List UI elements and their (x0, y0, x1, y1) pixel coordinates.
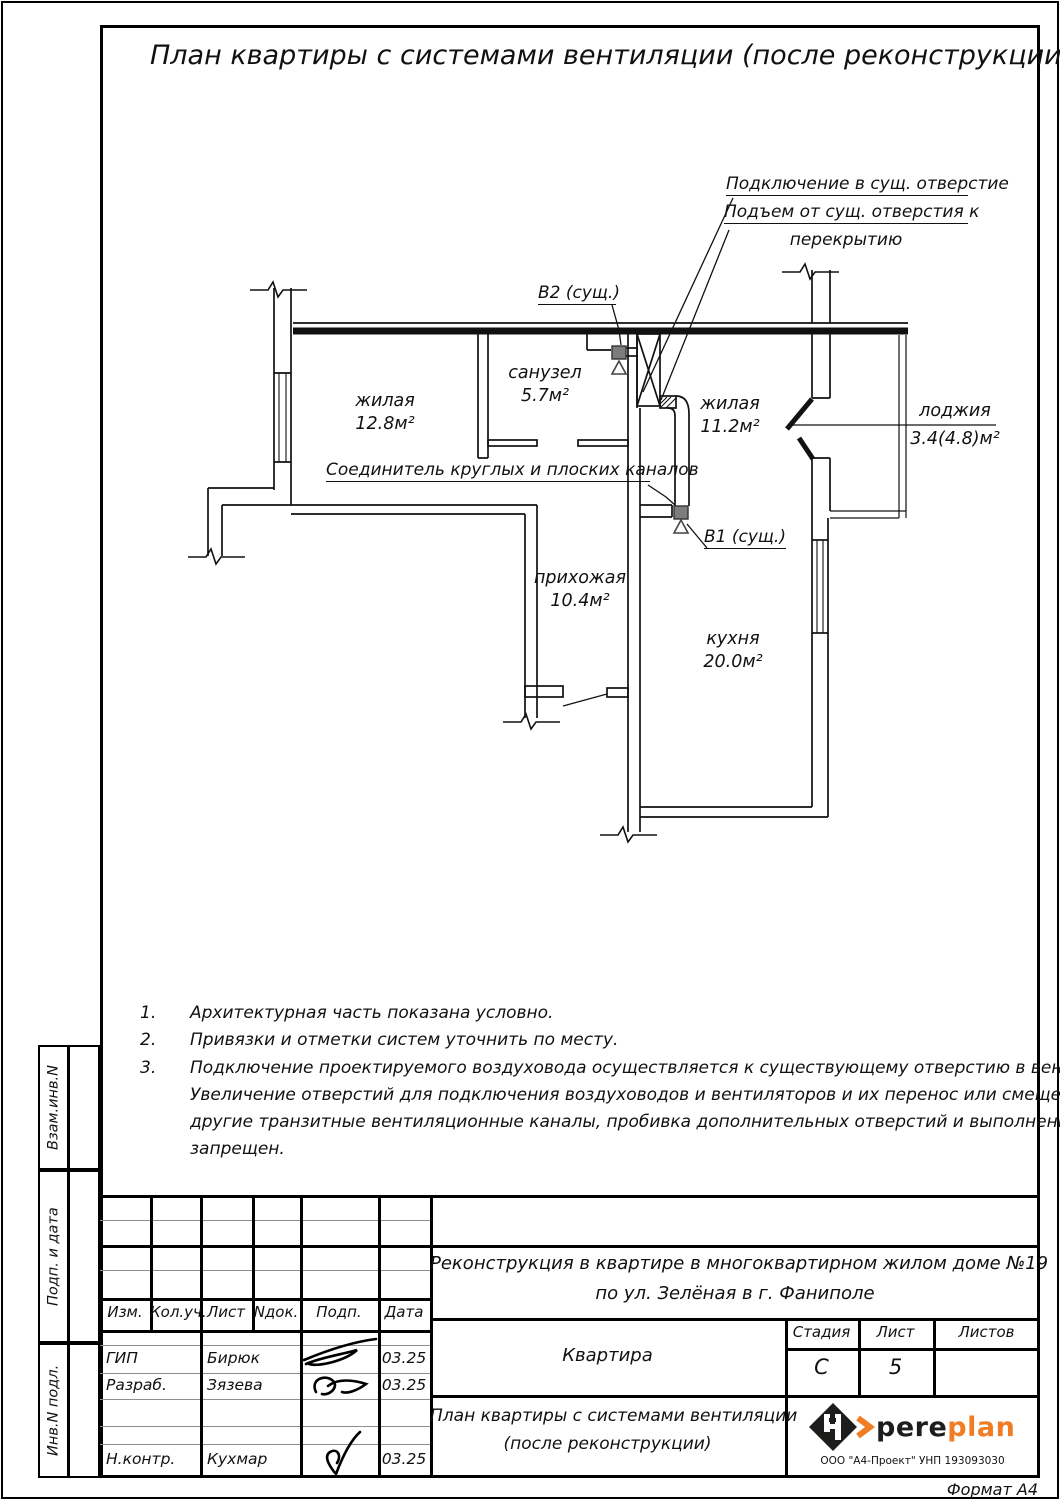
row-date: 03.25 (378, 1450, 430, 1468)
titleblock-line (430, 1318, 1040, 1321)
row-date: 03.25 (378, 1349, 430, 1367)
company-logo: pereplan (808, 1402, 1033, 1452)
room-area: 5.7м² (470, 385, 620, 408)
annotation-rise-line2: перекрытию (724, 230, 968, 250)
row-role: Разраб. (106, 1376, 167, 1394)
wall-break-symbols (188, 264, 839, 842)
project-title-line1: Реконструкция в квартире в многоквартирн… (430, 1253, 1040, 1274)
annotation-connect-hole: Подключение в сущ. отверстие (726, 174, 968, 196)
logo-text-plan: plan (947, 1412, 1015, 1443)
col-header-ndok: Nдок. (252, 1303, 300, 1321)
v2-hole-marker (612, 346, 626, 359)
v1-triangle-marker (674, 520, 688, 533)
sheet-value: 5 (858, 1355, 933, 1379)
room-name: жилая (645, 393, 815, 416)
note-number: 3. (140, 1058, 156, 1078)
row-name: Бирюк (207, 1349, 260, 1367)
side-stamp-vzam: Взам.инв.N (38, 1045, 100, 1170)
titleblock-line (100, 1195, 1040, 1198)
note-text: Архитектурная часть показана условно. (190, 1003, 553, 1023)
titleblock-line (785, 1348, 1040, 1351)
titleblock-line (430, 1395, 1040, 1398)
stamp-divider (67, 1172, 70, 1341)
object-name: Квартира (430, 1345, 785, 1366)
room-label-hallway: прихожая 10.4м² (495, 567, 665, 613)
titleblock-line (785, 1318, 788, 1478)
titleblock-line (200, 1195, 203, 1478)
note-text: Подключение проектируемого воздуховода о… (190, 1058, 1060, 1078)
doc-name-line2: (после реконструкции) (430, 1434, 785, 1454)
stage-value: С (785, 1355, 858, 1379)
col-header-izm: Изм. (100, 1303, 150, 1321)
logo-text-pere: pere (876, 1412, 947, 1443)
floor-plan-linework (0, 0, 1060, 1500)
sheets-label: Листов (933, 1323, 1040, 1341)
col-header-list: Лист (200, 1303, 252, 1321)
row-role: Н.контр. (106, 1450, 175, 1468)
signature-razrab (306, 1372, 376, 1400)
stamp-divider (67, 1345, 70, 1476)
room-area: 12.8м² (300, 413, 470, 436)
row-date: 03.25 (378, 1376, 430, 1394)
room-label-bathroom: санузел 5.7м² (470, 362, 620, 408)
room-name: жилая (300, 390, 470, 413)
doc-name-line1: План квартиры с системами вентиляции (430, 1406, 785, 1426)
annotation-rise-line1: Подъем от сущ. отверстия к (724, 202, 968, 224)
room-label-kitchen: кухня 20.0м² (648, 628, 818, 674)
room-area: 20.0м² (648, 651, 818, 674)
row-role: ГИП (106, 1349, 138, 1367)
room-area: 11.2м² (645, 416, 815, 439)
sheet-title: План квартиры с системами вентиляции (по… (150, 40, 910, 71)
leader-lines (612, 198, 996, 548)
note-number: 2. (140, 1030, 156, 1050)
room-name: санузел (470, 362, 620, 385)
room-label-living-128: жилая 12.8м² (300, 390, 470, 436)
side-stamp-label: Инв.N подл. (40, 1345, 67, 1476)
room-label-loggia-name: лоджия (905, 400, 1005, 423)
signature-gip (300, 1333, 380, 1375)
note-text: Увеличение отверстий для подключения воз… (190, 1085, 1060, 1105)
room-label-loggia-area: 3.4(4.8)м² (900, 428, 1010, 451)
room-area: 3.4(4.8)м² (900, 428, 1010, 451)
annotation-v1: В1 (сущ.) (704, 527, 786, 549)
room-area: 10.4м² (495, 590, 665, 613)
room-name: кухня (648, 628, 818, 651)
signature-nkontr (306, 1428, 376, 1478)
room-name: прихожая (495, 567, 665, 590)
stage-label: Стадия (785, 1323, 858, 1341)
col-header-data: Дата (378, 1303, 430, 1321)
project-title-line2: по ул. Зелёная в г. Фаниполе (430, 1283, 1040, 1304)
format-label: Формат А4 (880, 1480, 1038, 1499)
side-stamp-inv: Инв.N подл. (38, 1343, 100, 1478)
pereplan-logo-icon (808, 1402, 876, 1452)
col-header-podp: Подп. (300, 1303, 378, 1321)
annotation-v2: В2 (сущ.) (538, 283, 616, 305)
titleblock-line (100, 1245, 1040, 1248)
col-header-koluch: Кол.уч. (150, 1303, 200, 1321)
note-number: 1. (140, 1003, 156, 1023)
annotation-duct-connector: Соединитель круглых и плоских каналов (326, 460, 650, 482)
row-name: Зязева (207, 1376, 263, 1394)
drawing-sheet: План квартиры с системами вентиляции (по… (0, 0, 1060, 1500)
sheet-label: Лист (858, 1323, 933, 1341)
stamp-divider (67, 1047, 70, 1168)
pereplan-logo-text: pereplan (876, 1414, 1015, 1441)
walls (208, 270, 908, 832)
side-stamp-label: Взам.инв.N (40, 1047, 67, 1168)
side-stamp-podp: Подп. и дата (38, 1170, 100, 1343)
room-label-living-112: жилая 11.2м² (645, 393, 815, 439)
row-name: Кухмар (207, 1450, 267, 1468)
side-stamp-label: Подп. и дата (40, 1172, 67, 1341)
company-requisites: ООО "А4-Проект" УНП 193093030 (785, 1455, 1040, 1467)
note-text: Привязки и отметки систем уточнить по ме… (190, 1030, 618, 1050)
note-text: запрещен. (190, 1139, 285, 1159)
v1-hole-marker (674, 506, 688, 519)
room-name: лоджия (905, 400, 1005, 423)
note-text: другие транзитные вентиляционные каналы,… (190, 1112, 1060, 1132)
